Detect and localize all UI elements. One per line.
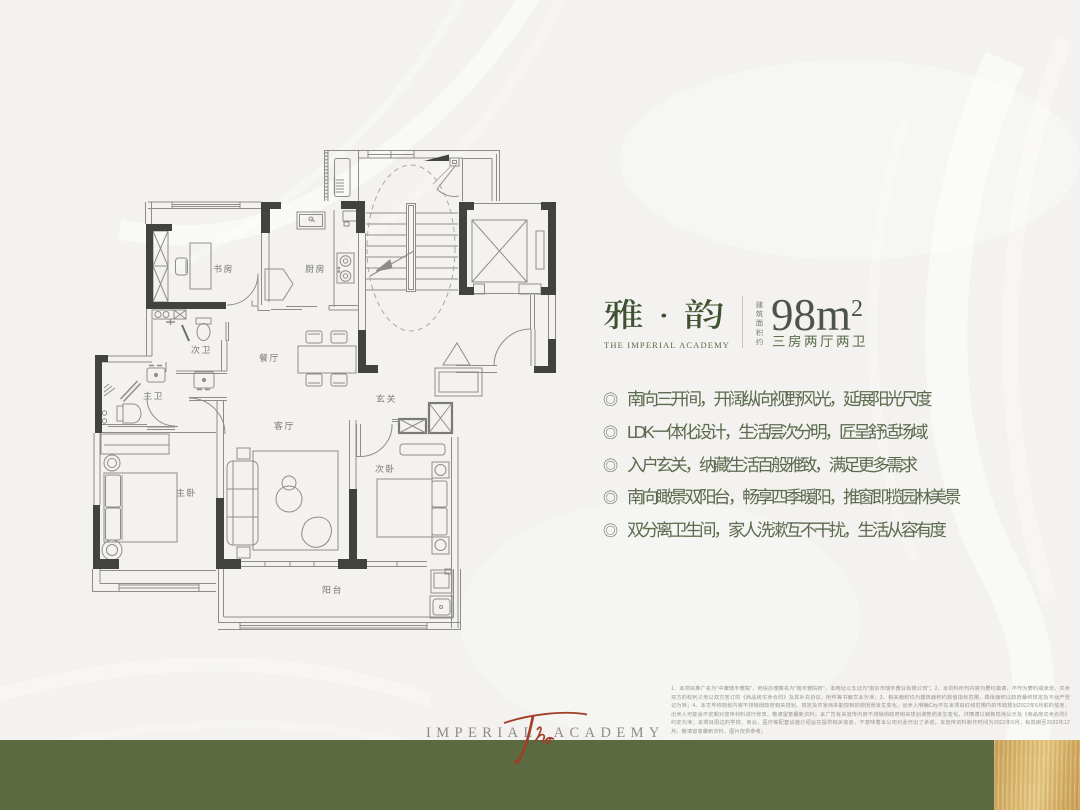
svg-text:厨房: 厨房 (305, 264, 326, 274)
svg-text:客厅: 客厅 (274, 421, 295, 431)
svg-text:主卧: 主卧 (176, 488, 197, 498)
svg-text:主卫: 主卫 (143, 391, 164, 401)
svg-text:次卧: 次卧 (375, 464, 396, 474)
svg-text:餐厅: 餐厅 (259, 353, 280, 363)
svg-text:玄关: 玄关 (376, 394, 397, 404)
svg-text:书房: 书房 (213, 264, 234, 274)
svg-text:阳台: 阳台 (322, 585, 343, 595)
svg-text:次卫: 次卫 (191, 345, 212, 355)
